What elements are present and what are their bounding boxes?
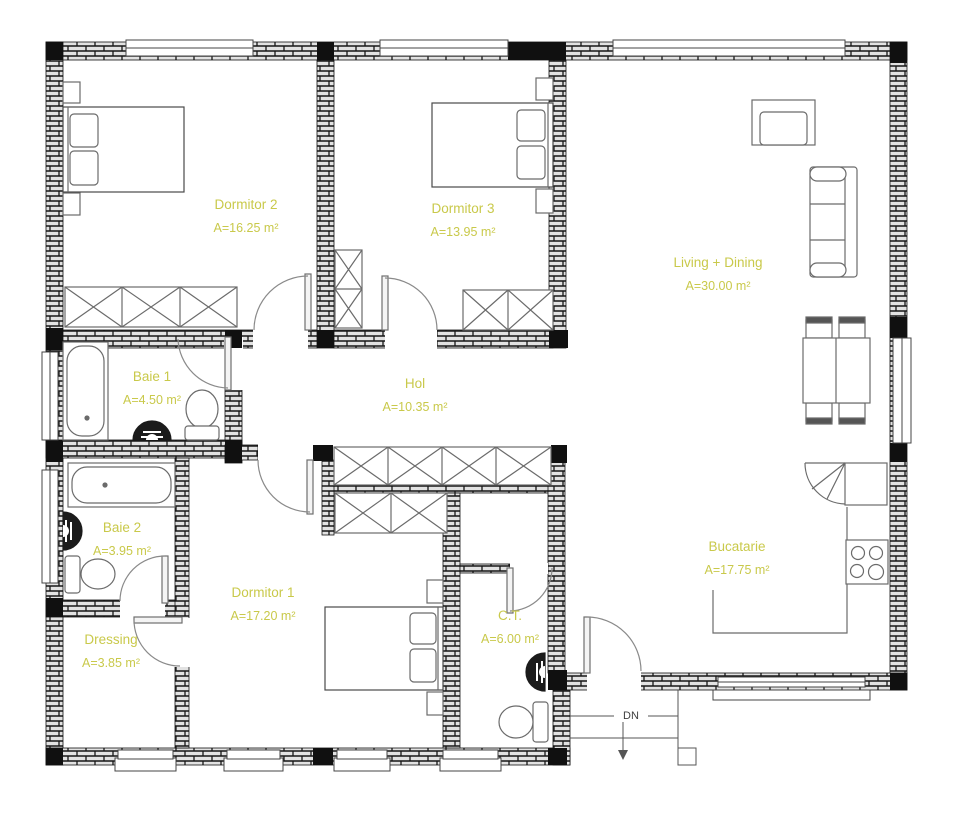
floor-plan: Dormitor 2 A=16.25 m² Dormitor 3 A=13.95…: [0, 0, 967, 829]
window-bottom-dorm1-right-icon: [334, 750, 390, 771]
window-left-baie1-icon: [42, 352, 58, 440]
wall-dressing-dorm1: [175, 458, 189, 748]
room-area: A=17.75 m²: [705, 563, 770, 577]
toilet-baie2-icon: [65, 556, 115, 593]
wall-under-dorm3: [334, 330, 553, 348]
nightstand-icon: [427, 692, 443, 715]
chair-back-icon: [839, 418, 865, 424]
door-dorm1: [258, 460, 313, 514]
closet-dorm3-icon: [335, 250, 362, 328]
stairs-down-label: DN: [619, 710, 643, 722]
room-name: Living + Dining: [674, 256, 763, 270]
wall-dorm2-dorm3: [317, 60, 334, 348]
sink-baie1-icon: [133, 421, 171, 440]
room-area: A=17.20 m²: [231, 609, 296, 623]
stove-icon: [846, 540, 888, 584]
room-area: A=3.95 m²: [93, 544, 151, 558]
room-name: Dressing: [82, 633, 140, 647]
room-name: Dormitor 2: [214, 198, 279, 212]
window-top-dorm3-icon: [380, 40, 508, 56]
bed-dorm2-icon: [63, 82, 184, 215]
wall-baie1-baie2: [46, 440, 242, 458]
room-label-living-dining: Living + Dining A=30.00 m²: [674, 256, 763, 293]
room-area: A=4.50 m²: [123, 393, 181, 407]
window-right-living-icon: [893, 338, 911, 443]
bed-dorm1-icon: [325, 580, 443, 715]
window-bottom-dressing-icon: [115, 750, 176, 771]
window-left-baie2-icon: [42, 470, 58, 583]
room-label-dressing: Dressing A=3.85 m²: [82, 633, 140, 670]
entry-steps: [570, 690, 696, 765]
room-name: Hol: [383, 377, 448, 391]
toilet-baie1-icon: [185, 390, 219, 440]
room-name: Baie 1: [123, 370, 181, 384]
room-name: C.T.: [481, 609, 539, 623]
room-area: A=30.00 m²: [674, 279, 763, 293]
nightstand-icon: [536, 78, 553, 100]
room-label-dormitor-1: Dormitor 1 A=17.20 m²: [231, 586, 296, 623]
dining-table-icon: [803, 317, 870, 424]
chair-back-icon: [839, 317, 865, 323]
window-top-dorm2-icon: [126, 40, 253, 56]
wardrobe-dorm1-icon: [335, 493, 447, 533]
wardrobe-dorm2-icon: [65, 287, 237, 327]
room-name: Bucatarie: [705, 540, 770, 554]
chair-back-icon: [806, 317, 832, 323]
chair-back-icon: [806, 418, 832, 424]
room-area: A=6.00 m²: [481, 632, 539, 646]
wardrobe-dorm3-icon: [463, 290, 553, 330]
room-label-baie-1: Baie 1 A=4.50 m²: [123, 370, 181, 407]
toilet-ct-icon: [499, 702, 548, 742]
room-label-dormitor-2: Dormitor 2 A=16.25 m²: [214, 198, 279, 235]
room-area: A=3.85 m²: [82, 656, 140, 670]
fridge-icon: [805, 463, 887, 505]
door-dorm2: [254, 274, 311, 330]
room-area: A=13.95 m²: [431, 225, 496, 239]
door-ct: [507, 568, 552, 613]
stairs-arrow-icon: [618, 722, 628, 760]
wardrobe-hol-icon: [334, 447, 551, 485]
wall-wardrobe-cap: [322, 460, 334, 535]
nightstand-icon: [536, 189, 553, 213]
bathtub-baie2-icon: [68, 463, 175, 507]
bathtub-baie1-icon: [63, 342, 108, 440]
room-label-dormitor-3: Dormitor 3 A=13.95 m²: [431, 202, 496, 239]
room-area: A=16.25 m²: [214, 221, 279, 235]
room-label-baie-2: Baie 2 A=3.95 m²: [93, 521, 151, 558]
tv-stand-icon: [752, 100, 815, 145]
nightstand-icon: [63, 193, 80, 215]
room-name: Dormitor 3: [431, 202, 496, 216]
bed-dorm3-icon: [432, 78, 553, 213]
room-area: A=10.35 m²: [383, 400, 448, 414]
door-entrance: [584, 617, 641, 673]
room-label-hol: Hol A=10.35 m²: [383, 377, 448, 414]
room-label-bucatarie: Bucatarie A=17.75 m²: [705, 540, 770, 577]
nightstand-icon: [427, 580, 443, 603]
room-name: Baie 2: [93, 521, 151, 535]
window-top-living-icon: [613, 40, 845, 56]
wall-wardrobe-back: [322, 485, 558, 493]
door-baie2: [120, 556, 168, 603]
window-bottom-ct-icon: [440, 750, 501, 771]
room-label-ct: C.T. A=6.00 m²: [481, 609, 539, 646]
door-dorm3: [382, 276, 437, 330]
room-name: Dormitor 1: [231, 586, 296, 600]
floor-plan-drawing: [0, 0, 967, 829]
wall-ct-top: [460, 564, 510, 573]
nightstand-icon: [63, 82, 80, 103]
window-bottom-dorm1-left-icon: [224, 750, 283, 771]
boiler-ct-icon: [526, 653, 545, 691]
sink-baie2-icon: [63, 512, 82, 550]
sofa-icon: [810, 167, 857, 277]
